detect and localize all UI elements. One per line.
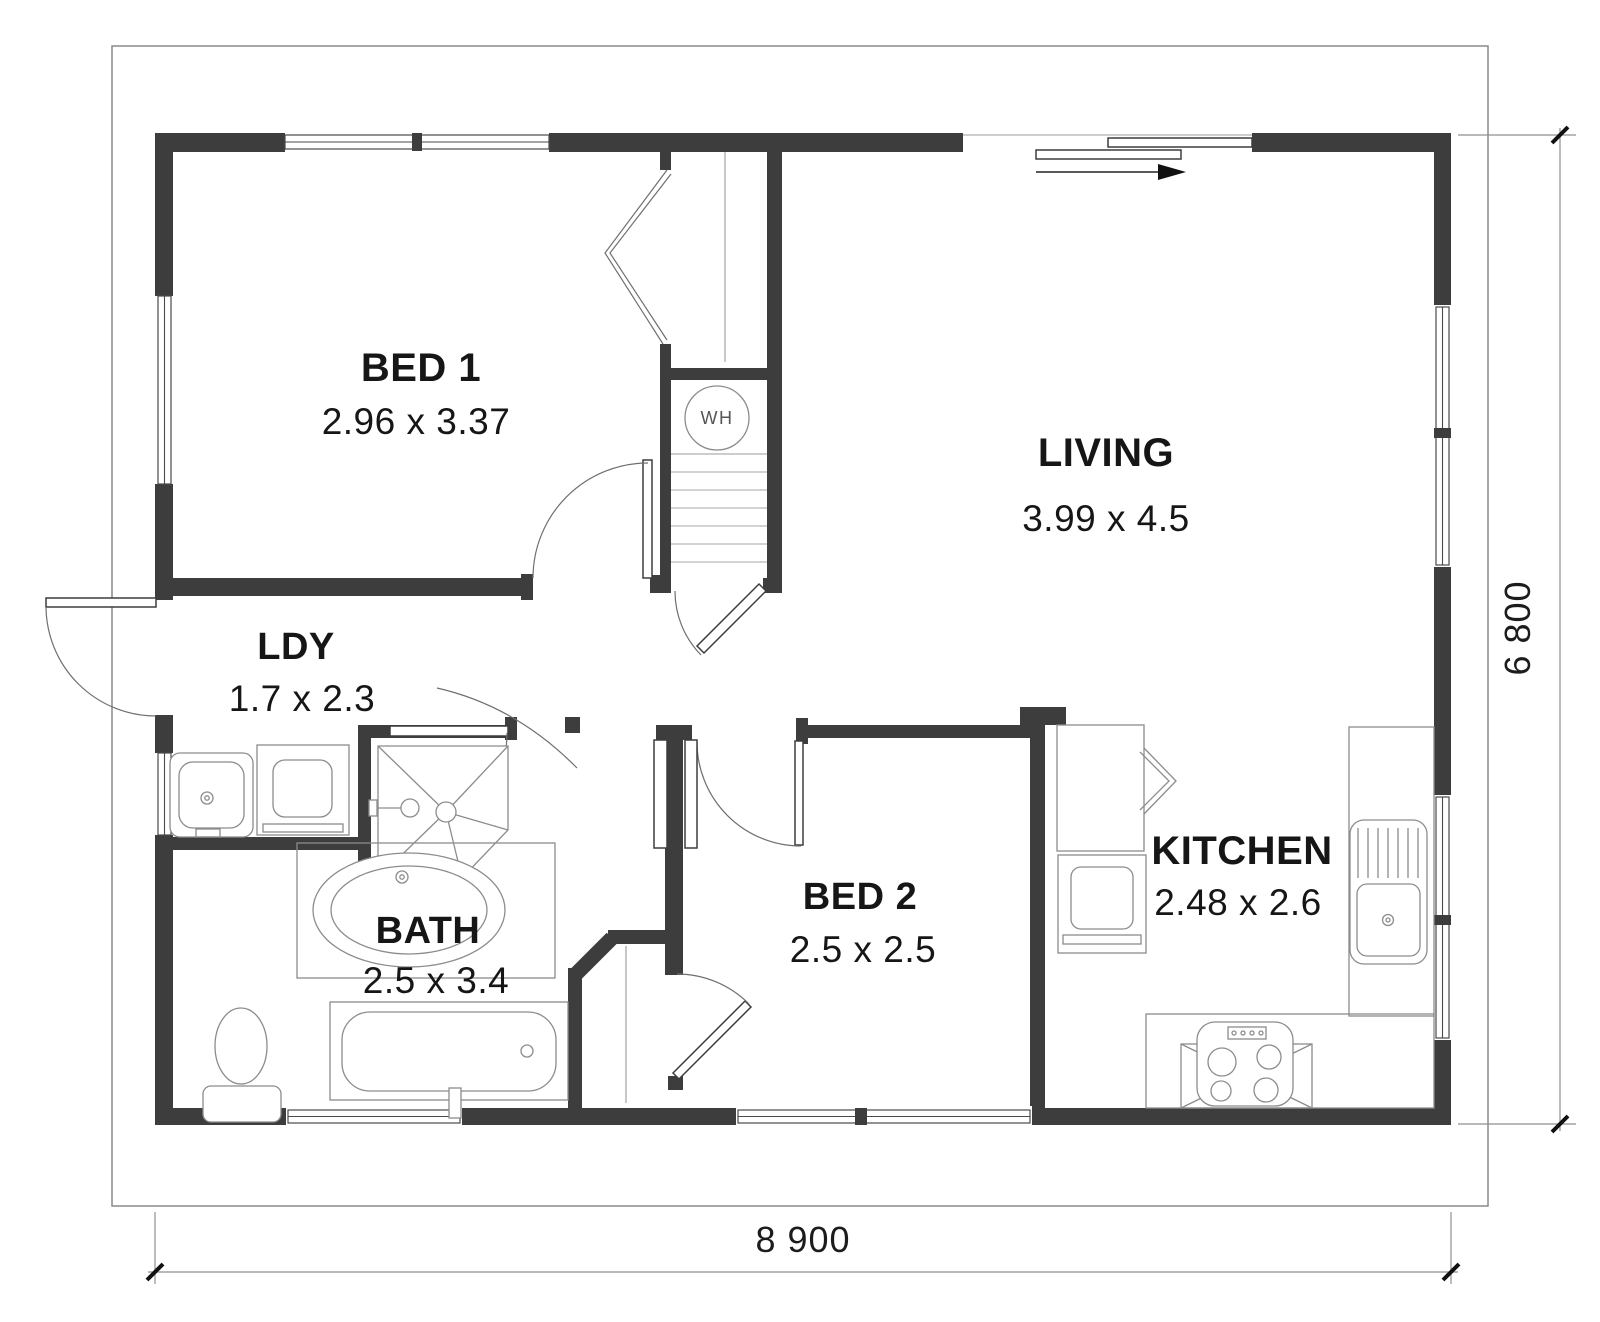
closet-and-stairs: WH [671, 152, 767, 562]
entry-door-opening [153, 600, 175, 715]
kitchen-sink [1350, 820, 1427, 964]
bed2-dims: 2.5 x 2.5 [790, 929, 936, 970]
bed1-dims: 2.96 x 3.37 [322, 401, 511, 442]
living-label: LIVING [1038, 431, 1174, 475]
stove [1181, 1022, 1312, 1108]
laundry-tub [170, 753, 253, 837]
bathtub [330, 1002, 568, 1118]
bath-tap [449, 1088, 461, 1118]
door-jamb-lining [685, 740, 697, 848]
exterior-walls [155, 133, 1451, 1125]
bath-label: BATH [376, 910, 481, 952]
shower-rose [401, 799, 419, 817]
ldy-dims: 1.7 x 2.3 [229, 678, 375, 719]
dimension-bottom: 8 900 [147, 1212, 1459, 1284]
closet-bifold-door [605, 170, 671, 344]
bed1-door [533, 460, 652, 578]
overall-height-dimension: 6 800 [1497, 580, 1538, 675]
oven [1058, 855, 1146, 953]
door-jamb-lining [654, 740, 667, 848]
slide-direction-arrow-icon [1036, 164, 1186, 180]
sliding-panel-outer [1108, 138, 1252, 147]
sliding-panel-inner [1036, 150, 1181, 159]
shower-drain [436, 802, 456, 822]
washing-machine [257, 745, 349, 835]
shower-tap [369, 800, 377, 816]
bed1-label: BED 1 [361, 346, 481, 390]
entry-door [46, 598, 156, 716]
dimension-right: 6 800 [1458, 127, 1576, 1132]
living-dims: 3.99 x 4.5 [1022, 498, 1190, 539]
kitchen-label: KITCHEN [1151, 829, 1332, 873]
hall-door [675, 584, 766, 655]
kitchen-dims: 2.48 x 2.6 [1154, 882, 1322, 923]
water-heater-label: WH [701, 408, 734, 428]
floor-plan-sheet: WH [0, 0, 1600, 1322]
bath-dims: 2.5 x 3.4 [363, 960, 509, 1001]
bed2-label: BED 2 [803, 876, 917, 918]
ldy-label: LDY [257, 626, 335, 668]
laundry-fixtures [170, 745, 349, 837]
overall-width-dimension: 8 900 [755, 1219, 850, 1260]
toilet [203, 1008, 281, 1122]
floor-plan-drawing: WH [0, 0, 1600, 1322]
vestibule-door [626, 946, 751, 1103]
living-sliding-door [963, 131, 1252, 180]
